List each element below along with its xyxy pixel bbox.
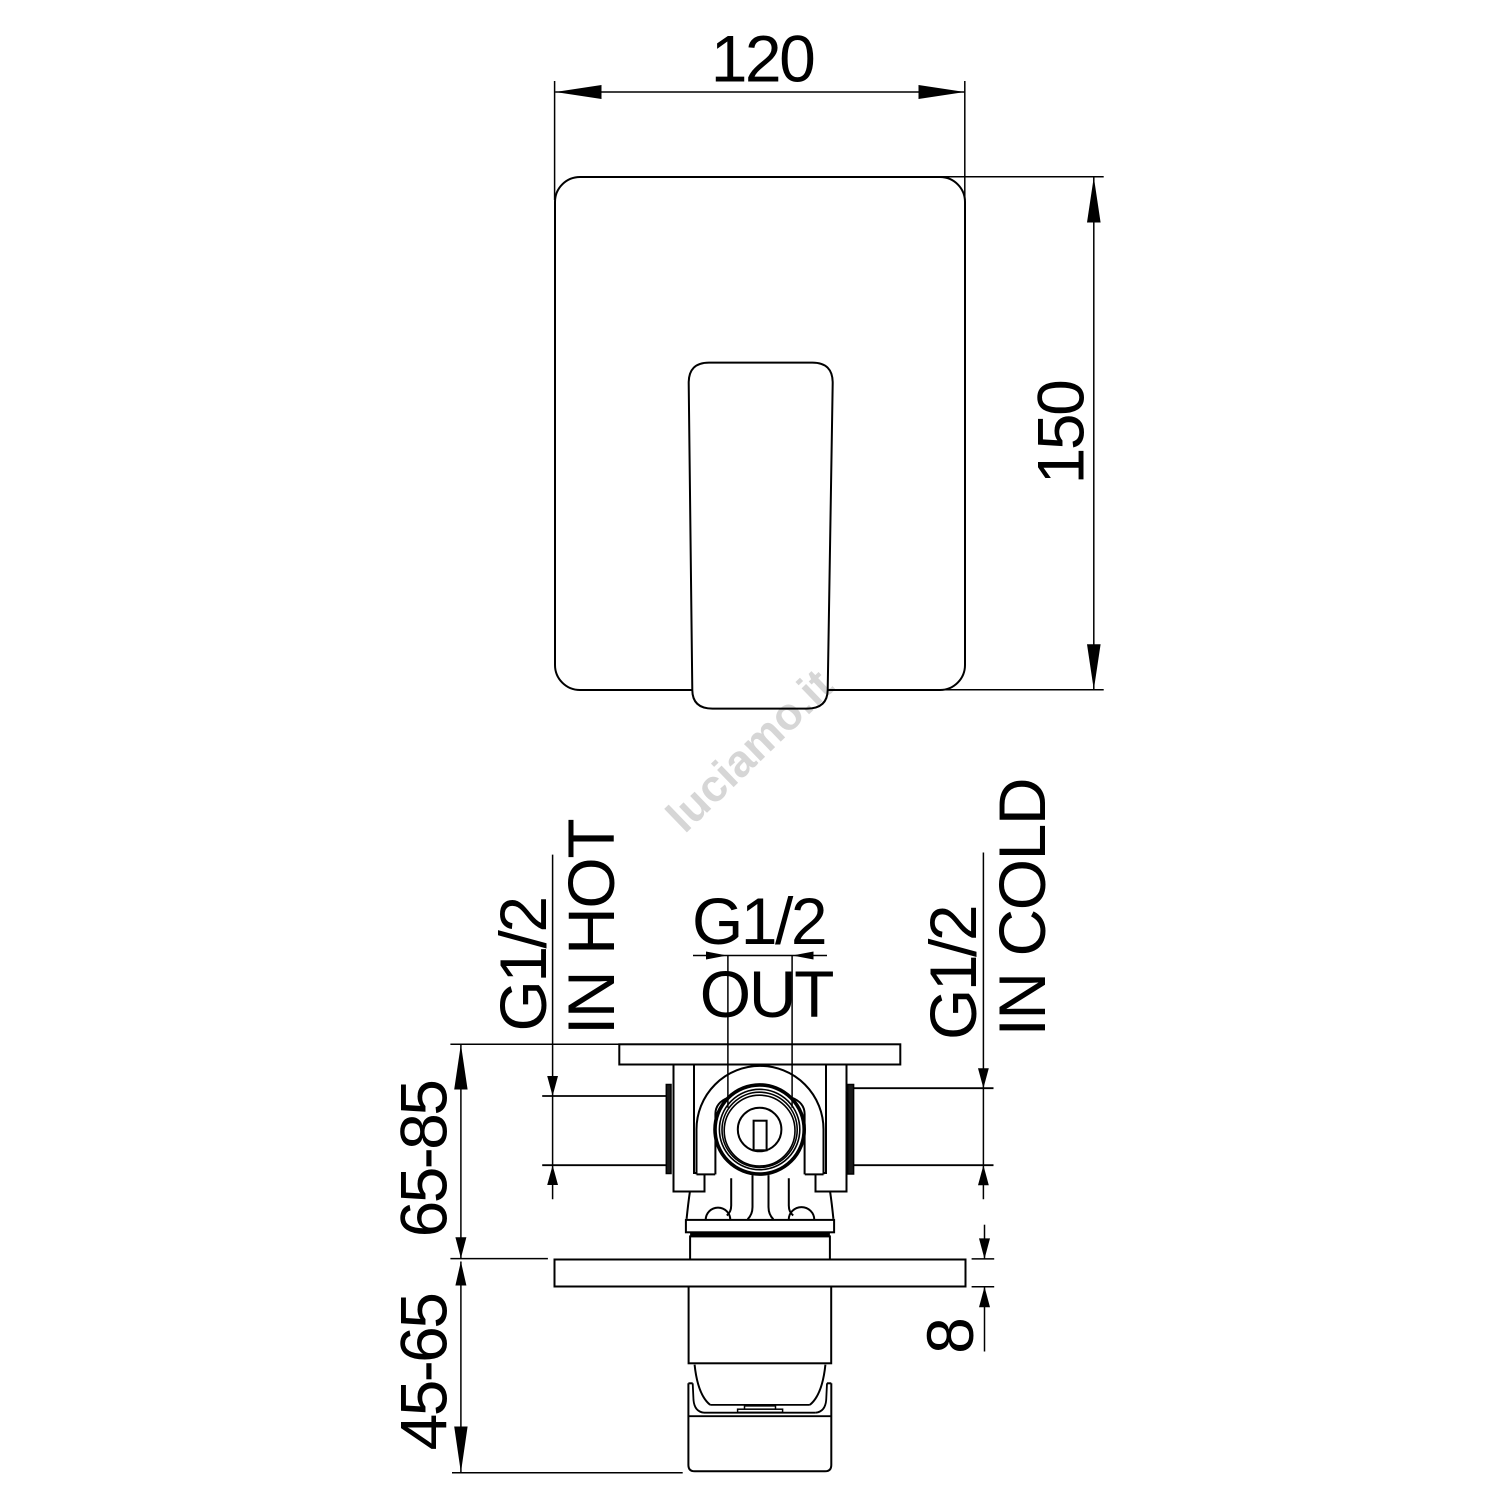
svg-text:8: 8 xyxy=(913,1317,987,1354)
svg-text:G1/2: G1/2 xyxy=(486,898,560,1031)
svg-text:G1/2: G1/2 xyxy=(692,884,825,958)
svg-text:120: 120 xyxy=(711,22,814,96)
svg-text:IN COLD: IN COLD xyxy=(985,779,1059,1037)
svg-text:65-85: 65-85 xyxy=(387,1082,461,1238)
svg-text:G1/2: G1/2 xyxy=(916,907,990,1040)
svg-text:45-65: 45-65 xyxy=(387,1295,461,1451)
svg-text:IN HOT: IN HOT xyxy=(554,820,628,1035)
svg-text:150: 150 xyxy=(1024,381,1098,484)
svg-text:OUT: OUT xyxy=(700,957,833,1031)
